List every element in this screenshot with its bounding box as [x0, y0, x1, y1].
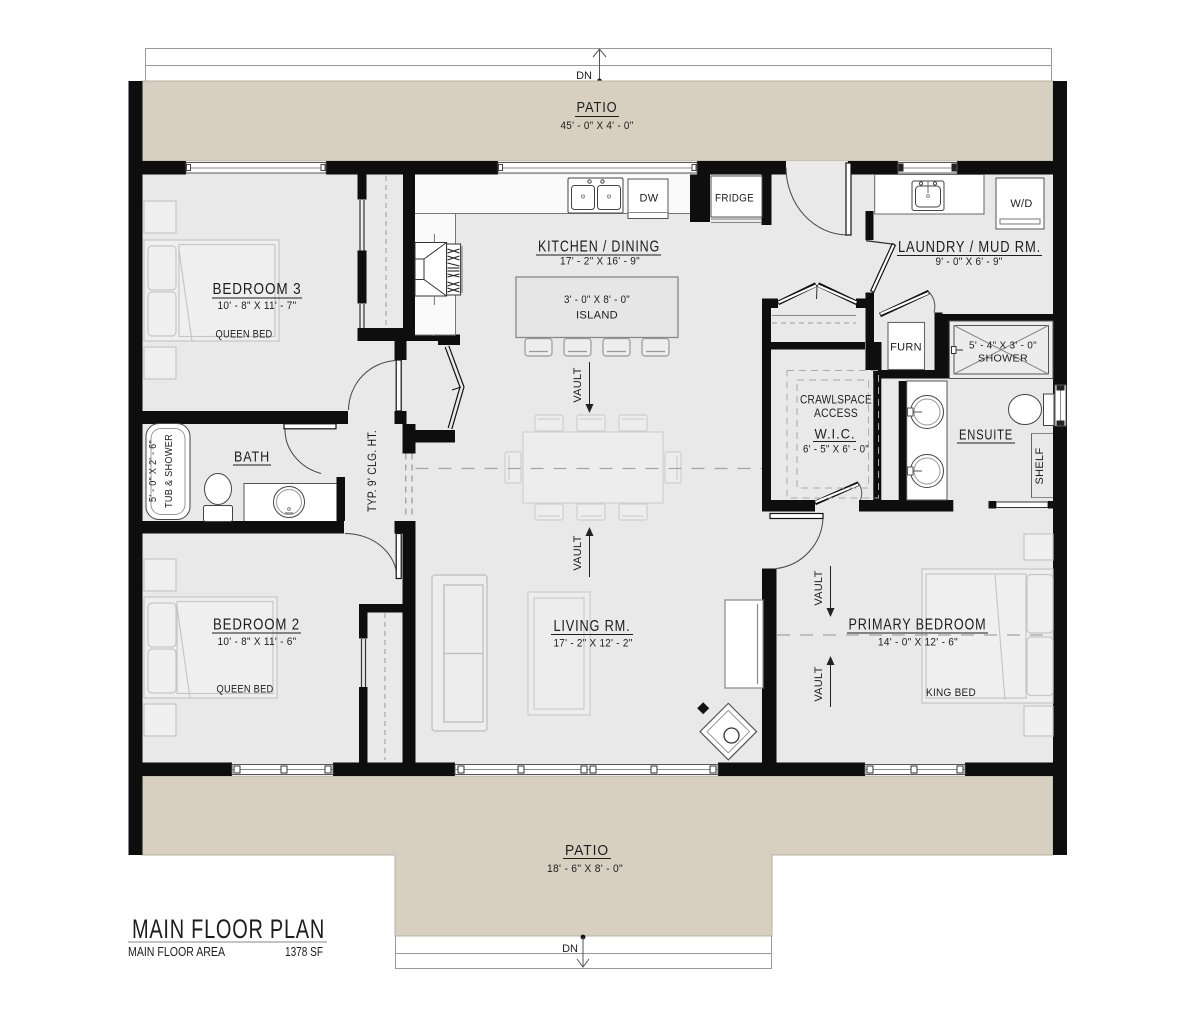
svg-text:10' - 8" X 11' - 7": 10' - 8" X 11' - 7" — [218, 300, 297, 312]
svg-text:DN: DN — [576, 70, 592, 82]
svg-text:PATIO: PATIO — [565, 842, 609, 859]
svg-text:KITCHEN / DINING: KITCHEN / DINING — [538, 239, 660, 256]
svg-text:18' - 6" X 8' - 0": 18' - 6" X 8' - 0" — [547, 863, 623, 875]
svg-text:14' - 0" X 12' - 6": 14' - 0" X 12' - 6" — [878, 637, 958, 649]
svg-text:45' - 0" X 4' - 0": 45' - 0" X 4' - 0" — [561, 120, 634, 132]
svg-text:17' - 2" X 16' - 9": 17' - 2" X 16' - 9" — [560, 256, 640, 268]
svg-text:BEDROOM 3: BEDROOM 3 — [213, 281, 302, 298]
svg-text:LIVING RM.: LIVING RM. — [554, 618, 631, 635]
svg-text:VAULT: VAULT — [572, 367, 584, 402]
svg-text:3' - 0" X 8' - 0": 3' - 0" X 8' - 0" — [564, 294, 630, 306]
svg-text:DW: DW — [640, 193, 659, 205]
svg-text:1378 SF: 1378 SF — [285, 945, 323, 959]
svg-text:BEDROOM 2: BEDROOM 2 — [213, 617, 300, 634]
svg-text:FURN: FURN — [890, 342, 922, 354]
svg-text:17' - 2" X 12' - 2": 17' - 2" X 12' - 2" — [554, 638, 633, 650]
svg-text:VAULT: VAULT — [572, 535, 584, 570]
svg-text:KING BED: KING BED — [926, 687, 976, 699]
svg-text:FRIDGE: FRIDGE — [715, 193, 754, 205]
svg-text:ACCESS: ACCESS — [814, 408, 858, 420]
svg-text:LAUNDRY / MUD RM.: LAUNDRY / MUD RM. — [898, 239, 1041, 256]
svg-text:PATIO: PATIO — [577, 99, 618, 116]
svg-text:VAULT: VAULT — [813, 666, 825, 701]
svg-text:TYP. 9' CLG. HT.: TYP. 9' CLG. HT. — [367, 430, 379, 512]
svg-text:VAULT: VAULT — [813, 570, 825, 605]
svg-text:W/D: W/D — [1010, 198, 1032, 210]
svg-text:QUEEN BED: QUEEN BED — [217, 684, 274, 696]
svg-text:SHELF: SHELF — [1034, 448, 1046, 485]
svg-text:ISLAND: ISLAND — [576, 310, 618, 322]
svg-text:9' - 0" X 6' - 9": 9' - 0" X 6' - 9" — [936, 256, 1003, 268]
svg-text:10' - 8" X 11' - 6": 10' - 8" X 11' - 6" — [218, 636, 297, 648]
svg-text:TUB & SHOWER: TUB & SHOWER — [164, 434, 175, 508]
svg-text:6' - 5" X 6' - 0": 6' - 5" X 6' - 0" — [803, 444, 869, 456]
svg-text:CRAWLSPACE: CRAWLSPACE — [800, 395, 872, 407]
svg-text:W.I.C.: W.I.C. — [815, 426, 856, 442]
svg-text:SHOWER: SHOWER — [978, 353, 1028, 365]
svg-text:DN: DN — [562, 943, 578, 955]
svg-text:MAIN FLOOR AREA: MAIN FLOOR AREA — [128, 945, 226, 959]
svg-text:PRIMARY BEDROOM: PRIMARY BEDROOM — [849, 617, 987, 634]
svg-text:5' - 4" X 3' - 0": 5' - 4" X 3' - 0" — [969, 340, 1037, 352]
svg-text:QUEEN BED: QUEEN BED — [216, 329, 273, 341]
svg-text:MAIN FLOOR PLAN: MAIN FLOOR PLAN — [132, 914, 325, 944]
svg-text:5' - 0" X 2' - 6": 5' - 0" X 2' - 6" — [148, 440, 159, 502]
svg-text:ENSUITE: ENSUITE — [959, 428, 1013, 444]
svg-text:BATH: BATH — [234, 450, 270, 466]
